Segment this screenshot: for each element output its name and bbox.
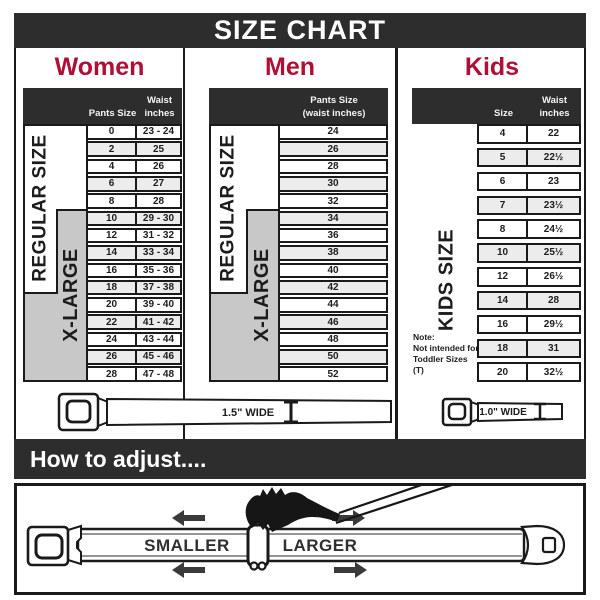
arm-line xyxy=(339,486,442,513)
women-xlarge-label: X-LARGE xyxy=(60,248,82,342)
pants-size-cell: 2 xyxy=(86,141,137,157)
size-cell: 5 xyxy=(477,148,528,168)
pants-size-cell: 34 xyxy=(278,211,388,227)
adjust-illustration-panel: SMALLER LARGER xyxy=(14,483,586,595)
table-row: 4 26 xyxy=(86,159,182,175)
arrow-left-icon xyxy=(172,562,205,578)
size-cell: 16 xyxy=(477,315,528,335)
kids-col-size: Size xyxy=(479,108,528,120)
hand-icon xyxy=(246,487,340,532)
pants-size-cell: 44 xyxy=(278,297,388,313)
table-row: 16 29½ xyxy=(477,315,583,335)
pants-size-cell: 28 xyxy=(86,366,137,382)
table-row: 16 35 - 36 xyxy=(86,263,182,279)
size-cell: 14 xyxy=(477,291,528,311)
kids-size-category-zone: KIDS SIZE Note: Not intended for Toddler… xyxy=(412,124,479,382)
women-section-title: Women xyxy=(16,53,183,82)
waist-cell: 43 - 44 xyxy=(135,332,182,348)
pants-size-cell: 24 xyxy=(278,124,388,140)
pants-size-cell: 42 xyxy=(278,280,388,296)
waist-cell: 26½ xyxy=(526,267,581,287)
how-to-adjust-bar: How to adjust.... xyxy=(14,439,586,479)
arm-line xyxy=(336,486,455,523)
pants-size-cell: 8 xyxy=(86,193,137,209)
table-row: 2 25 xyxy=(86,141,182,157)
waist-cell: 45 - 46 xyxy=(135,349,182,365)
men-regular-label: REGULAR SIZE xyxy=(218,134,239,281)
waist-cell: 25½ xyxy=(526,243,581,263)
pants-size-cell: 14 xyxy=(86,245,137,261)
how-to-adjust-title: How to adjust.... xyxy=(14,446,206,473)
table-row: 20 39 - 40 xyxy=(86,297,182,313)
size-cell: 8 xyxy=(477,219,528,239)
table-row: 26 45 - 46 xyxy=(86,349,182,365)
size-cell: 7 xyxy=(477,196,528,216)
waist-cell: 28 xyxy=(135,193,182,209)
table-row: 8 24½ xyxy=(477,219,583,239)
waist-cell: 26 xyxy=(135,159,182,175)
belt-width-label: 1.0" WIDE xyxy=(479,407,527,418)
women-size-table: 0 23 - 24 2 25 4 26 6 27 8 28 10 29 - 30… xyxy=(86,124,182,382)
adult-belt-diagram: 1.5" WIDE xyxy=(55,390,395,435)
women-size-category-graphic: REGULAR SIZE X-LARGE xyxy=(23,124,88,382)
men-col-pants-size: Pants Size (waist inches) xyxy=(280,95,388,120)
size-cell: 4 xyxy=(477,124,528,144)
table-row: 12 31 - 32 xyxy=(86,228,182,244)
table-row: 40 xyxy=(278,263,388,279)
adjuster-foot xyxy=(251,563,258,570)
waist-cell: 31 xyxy=(526,339,581,359)
pants-size-cell: 22 xyxy=(86,314,137,330)
waist-cell: 32½ xyxy=(526,362,581,382)
arrow-left-icon xyxy=(172,510,205,526)
pants-size-cell: 4 xyxy=(86,159,137,175)
arrow-right-icon xyxy=(334,562,367,578)
size-cell: 12 xyxy=(477,267,528,287)
table-row: 22 41 - 42 xyxy=(86,314,182,330)
divider-women-men xyxy=(183,48,185,439)
size-cell: 18 xyxy=(477,339,528,359)
table-row: 26 xyxy=(278,141,388,157)
women-regular-label: REGULAR SIZE xyxy=(30,134,51,281)
adjuster-foot xyxy=(259,563,266,570)
men-xlarge-label: X-LARGE xyxy=(251,248,273,342)
pants-size-cell: 0 xyxy=(86,124,137,140)
table-row: 8 28 xyxy=(86,193,182,209)
table-row: 24 xyxy=(278,124,388,140)
table-row: 10 29 - 30 xyxy=(86,211,182,227)
size-cell: 6 xyxy=(477,172,528,192)
table-row: 12 26½ xyxy=(477,267,583,287)
table-row: 48 xyxy=(278,332,388,348)
waist-cell: 29 - 30 xyxy=(135,211,182,227)
pants-size-cell: 10 xyxy=(86,211,137,227)
size-cell: 20 xyxy=(477,362,528,382)
kids-size-label: KIDS SIZE xyxy=(436,229,459,331)
men-section-title: Men xyxy=(185,53,395,82)
pants-size-cell: 38 xyxy=(278,245,388,261)
women-table-header: Pants Size Waist inches xyxy=(23,88,182,124)
table-row: 0 23 - 24 xyxy=(86,124,182,140)
waist-cell: 33 - 34 xyxy=(135,245,182,261)
table-row: 5 22½ xyxy=(477,148,583,168)
buckle-button xyxy=(36,535,62,558)
pants-size-cell: 46 xyxy=(278,314,388,330)
belt-tip-slot xyxy=(543,538,555,552)
page-title: SIZE CHART xyxy=(214,15,386,46)
table-row: 46 xyxy=(278,314,388,330)
belt-adjuster xyxy=(248,525,268,567)
pants-size-cell: 52 xyxy=(278,366,388,382)
waist-cell: 39 - 40 xyxy=(135,297,182,313)
table-row: 30 xyxy=(278,176,388,192)
pants-size-cell: 30 xyxy=(278,176,388,192)
table-row: 24 43 - 44 xyxy=(86,332,182,348)
waist-cell: 22½ xyxy=(526,148,581,168)
waist-cell: 27 xyxy=(135,176,182,192)
table-row: 50 xyxy=(278,349,388,365)
pants-size-cell: 18 xyxy=(86,280,137,296)
pants-size-cell: 20 xyxy=(86,297,137,313)
table-row: 4 22 xyxy=(477,124,583,144)
pants-size-cell: 50 xyxy=(278,349,388,365)
table-row: 44 xyxy=(278,297,388,313)
waist-cell: 23 - 24 xyxy=(135,124,182,140)
pants-size-cell: 26 xyxy=(278,141,388,157)
kids-section-title: Kids xyxy=(398,53,586,82)
table-row: 6 27 xyxy=(86,176,182,192)
divider-men-kids xyxy=(395,48,398,439)
waist-cell: 24½ xyxy=(526,219,581,239)
table-row: 36 xyxy=(278,228,388,244)
table-row: 6 23 xyxy=(477,172,583,192)
kids-table-header: Size Waist inches xyxy=(412,88,581,124)
waist-cell: 28 xyxy=(526,291,581,311)
waist-cell: 23 xyxy=(526,172,581,192)
table-row: 7 23½ xyxy=(477,196,583,216)
table-row: 14 33 - 34 xyxy=(86,245,182,261)
pants-size-cell: 12 xyxy=(86,228,137,244)
kids-size-table: 4 22 5 22½ 6 23 7 23½ 8 24½ 10 25½ 12 26… xyxy=(477,124,583,382)
belt-buckle-icon xyxy=(59,394,98,430)
table-row: 52 xyxy=(278,366,388,382)
kids-note: Note: Not intended for Toddler Sizes (T) xyxy=(413,332,479,376)
table-row: 28 47 - 48 xyxy=(86,366,182,382)
table-row: 14 28 xyxy=(477,291,583,311)
larger-label: LARGER xyxy=(283,536,358,555)
table-row: 18 31 xyxy=(477,339,583,359)
table-row: 18 37 - 38 xyxy=(86,280,182,296)
table-row: 10 25½ xyxy=(477,243,583,263)
table-row: 28 xyxy=(278,159,388,175)
men-table-header: Pants Size (waist inches) xyxy=(209,88,388,124)
pants-size-cell: 36 xyxy=(278,228,388,244)
waist-cell: 22 xyxy=(526,124,581,144)
pants-size-cell: 26 xyxy=(86,349,137,365)
waist-cell: 25 xyxy=(135,141,182,157)
men-size-table: 24 26 28 30 32 34 36 38 40 42 44 46 48 5… xyxy=(278,124,388,382)
belt-width-label: 1.5" WIDE xyxy=(222,407,274,419)
table-row: 34 xyxy=(278,211,388,227)
table-row: 38 xyxy=(278,245,388,261)
waist-cell: 31 - 32 xyxy=(135,228,182,244)
men-size-category-graphic: REGULAR SIZE X-LARGE xyxy=(209,124,280,382)
waist-cell: 47 - 48 xyxy=(135,366,182,382)
pants-size-cell: 48 xyxy=(278,332,388,348)
pants-size-cell: 24 xyxy=(86,332,137,348)
pants-size-cell: 32 xyxy=(278,193,388,209)
pants-size-cell: 6 xyxy=(86,176,137,192)
adjust-illustration: SMALLER LARGER xyxy=(17,486,583,592)
pants-size-cell: 16 xyxy=(86,263,137,279)
table-row: 20 32½ xyxy=(477,362,583,382)
waist-cell: 41 - 42 xyxy=(135,314,182,330)
smaller-label: SMALLER xyxy=(144,536,230,555)
size-cell: 10 xyxy=(477,243,528,263)
waist-cell: 29½ xyxy=(526,315,581,335)
waist-cell: 23½ xyxy=(526,196,581,216)
kids-col-waist: Waist inches xyxy=(528,95,581,120)
pants-size-cell: 28 xyxy=(278,159,388,175)
size-chart-page: SIZE CHART Women Men Kids Pants Size Wai… xyxy=(0,0,600,600)
waist-cell: 37 - 38 xyxy=(135,280,182,296)
waist-cell: 35 - 36 xyxy=(135,263,182,279)
pants-size-cell: 40 xyxy=(278,263,388,279)
kids-belt-diagram: 1.0" WIDE xyxy=(437,395,567,428)
women-col-pants-size: Pants Size xyxy=(88,108,137,120)
title-bar: SIZE CHART xyxy=(14,13,586,48)
women-col-waist: Waist inches xyxy=(137,95,182,120)
table-row: 42 xyxy=(278,280,388,296)
table-row: 32 xyxy=(278,193,388,209)
